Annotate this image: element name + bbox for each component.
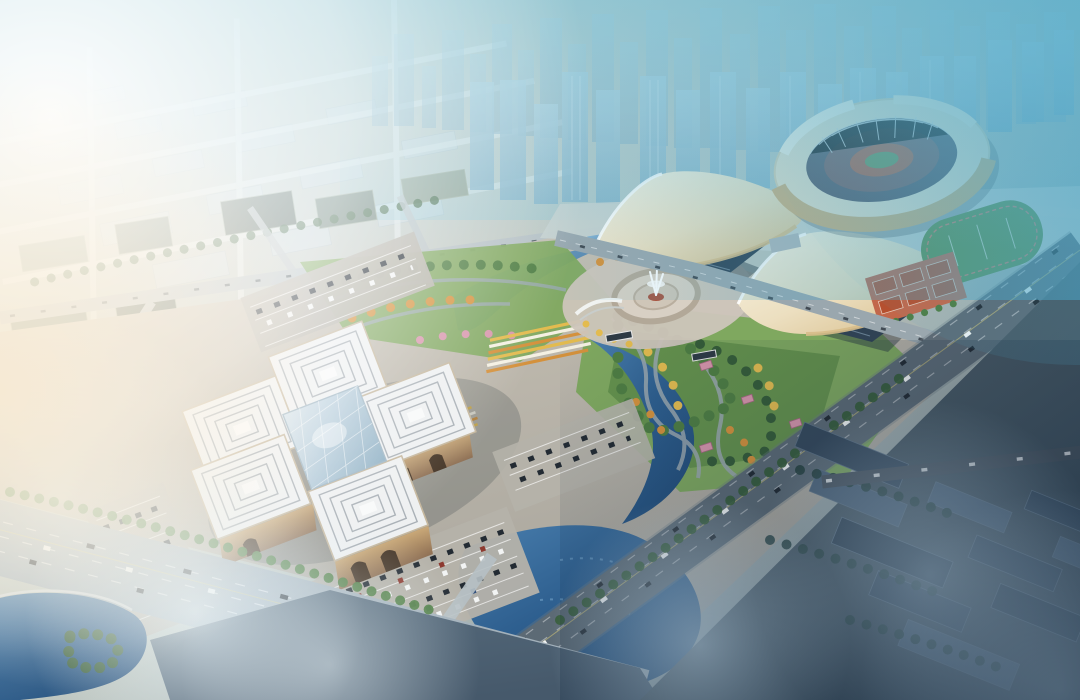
- aerial-rendering-canvas: [0, 0, 1080, 700]
- southeast-dusk: [560, 340, 1080, 700]
- scene-svg: [0, 0, 1080, 700]
